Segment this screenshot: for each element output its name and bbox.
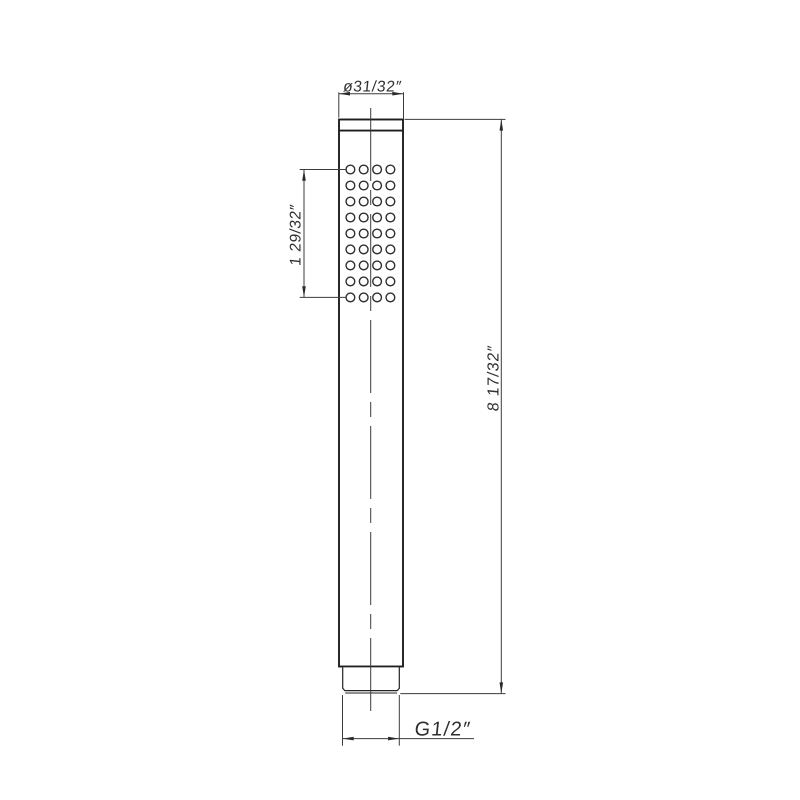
svg-text:ø31/32″: ø31/32″: [342, 78, 402, 95]
svg-text:8 17/32″: 8 17/32″: [485, 344, 503, 412]
svg-text:1 29/32″: 1 29/32″: [287, 204, 304, 267]
svg-text:G1/2″: G1/2″: [413, 719, 472, 741]
